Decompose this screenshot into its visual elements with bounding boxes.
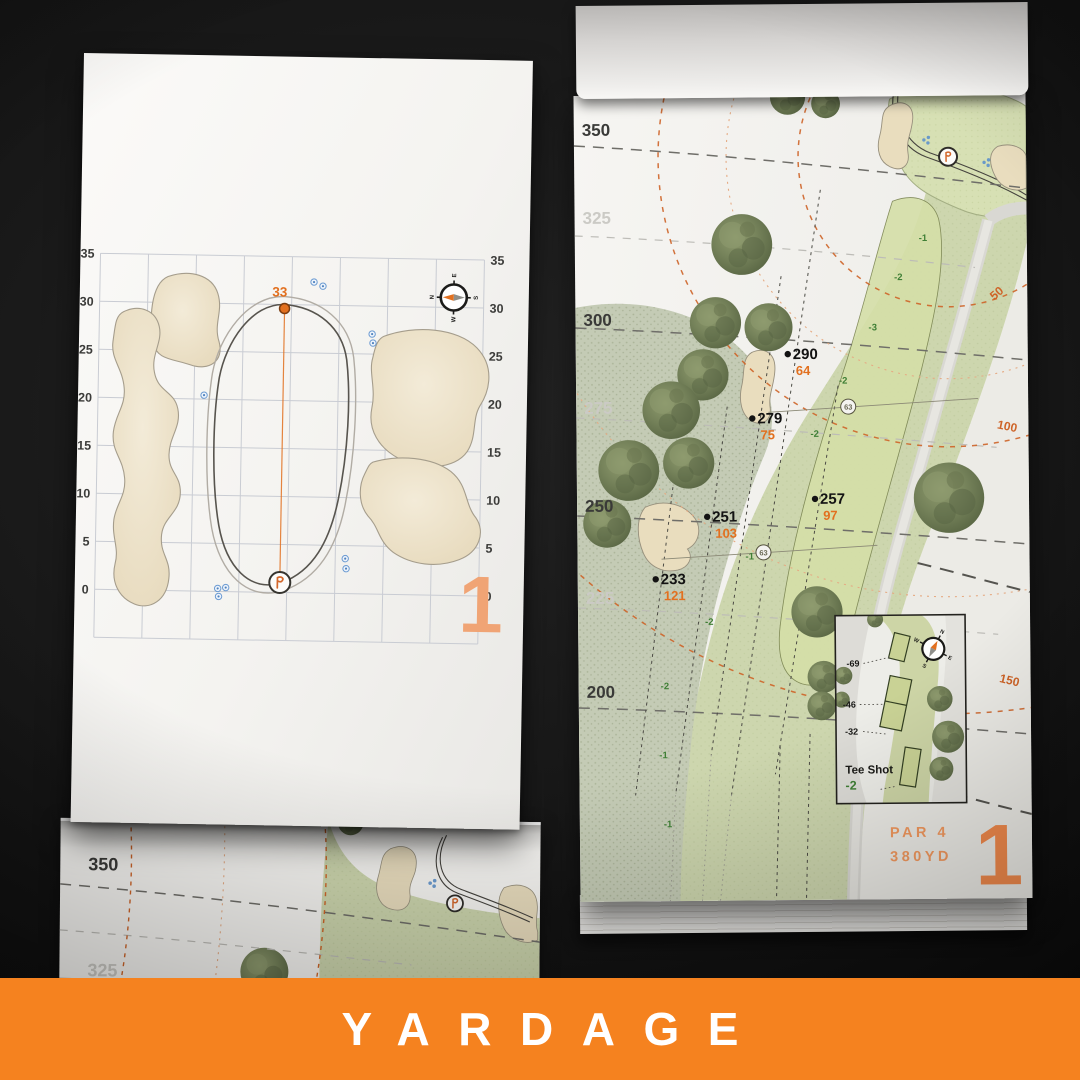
svg-text:5: 5 [82, 535, 89, 549]
green-detail-diagram: 3530 2520 1510 50 3530 2520 1510 50 [71, 53, 533, 830]
svg-text:350: 350 [582, 121, 611, 140]
svg-text:-3: -3 [868, 322, 877, 333]
hole-map: 63 63 [573, 92, 1032, 902]
pin-circle [939, 148, 957, 166]
par-label: PAR 4 [890, 825, 949, 842]
bunker [878, 103, 913, 169]
svg-text:25: 25 [79, 342, 93, 356]
svg-text:75: 75 [760, 427, 775, 442]
svg-text:-69: -69 [846, 659, 859, 669]
bunker [150, 273, 221, 367]
depth-line [280, 309, 285, 581]
svg-text:-1: -1 [745, 551, 754, 562]
pin-circle [269, 572, 290, 593]
distance-label: 380YD [890, 849, 952, 866]
svg-text:-32: -32 [845, 727, 858, 737]
carry-marker: 290 64 [784, 346, 818, 378]
compass-icon: NE SW [429, 273, 480, 323]
svg-text:257: 257 [820, 491, 845, 508]
svg-text:200: 200 [587, 683, 616, 702]
svg-text:W: W [451, 316, 457, 322]
under-green-area [240, 818, 541, 982]
svg-text:97: 97 [823, 508, 838, 523]
svg-text:30: 30 [489, 302, 503, 316]
yardage-book-mockup: 350 325 3530 2520 1510 50 [0, 0, 1080, 1080]
sprinkler-cluster [428, 879, 436, 888]
svg-text:-2: -2 [839, 376, 848, 387]
svg-text:325: 325 [582, 209, 611, 228]
tree [240, 947, 288, 982]
svg-text:E: E [452, 273, 458, 277]
pin-circle [447, 895, 463, 911]
width-marker: 63 [841, 399, 856, 414]
banner-title: YARDAGE [342, 1002, 767, 1056]
svg-text:30: 30 [80, 294, 94, 308]
svg-text:-2: -2 [810, 429, 819, 440]
svg-text:35: 35 [80, 246, 94, 260]
svg-text:251: 251 [712, 509, 737, 526]
hole-number: 1 [975, 807, 1024, 902]
svg-text:-46: -46 [843, 700, 856, 710]
svg-text:250: 250 [585, 497, 614, 516]
svg-text:10: 10 [486, 494, 500, 508]
left-under-page: 350 325 [59, 818, 540, 982]
svg-text:233: 233 [661, 571, 686, 588]
depth-label: 33 [272, 284, 288, 299]
svg-text:20: 20 [488, 398, 502, 412]
left-page-green-detail: 3530 2520 1510 50 3530 2520 1510 50 [71, 53, 533, 830]
svg-text:-1: -1 [919, 233, 928, 244]
tree [929, 757, 953, 781]
svg-text:-1: -1 [664, 819, 673, 830]
flipped-over-page [576, 2, 1029, 99]
svg-text:N: N [430, 295, 436, 299]
svg-text:15: 15 [487, 446, 501, 460]
svg-text:35: 35 [490, 254, 504, 268]
tree [835, 667, 853, 685]
svg-text:225: 225 [586, 589, 615, 608]
svg-text:25: 25 [489, 350, 503, 364]
yardage-label-350: 350 [88, 854, 118, 874]
svg-text:103: 103 [715, 526, 737, 541]
svg-text:S: S [474, 296, 480, 300]
hole-number: 1 [458, 560, 504, 650]
svg-text:15: 15 [77, 438, 91, 452]
svg-text:300: 300 [583, 311, 612, 330]
greenside-bunkers [108, 272, 490, 612]
tee-shot-inset: -69 -46 -32 Tee Shot -2 NE SW [833, 611, 967, 804]
svg-text:-1: -1 [659, 750, 668, 761]
svg-text:64: 64 [796, 363, 811, 378]
svg-text:-2: -2 [705, 617, 714, 628]
tee-shot-total: -2 [845, 779, 856, 793]
svg-text:10: 10 [76, 486, 90, 500]
tee-shot-title: Tee Shot [845, 764, 893, 776]
svg-text:121: 121 [664, 588, 686, 603]
svg-text:-2: -2 [661, 681, 670, 692]
distance-arc [121, 818, 132, 978]
tree [927, 686, 953, 712]
bunker [359, 457, 482, 565]
svg-text:5: 5 [485, 542, 492, 556]
svg-text:63: 63 [759, 548, 767, 557]
footer-banner: YARDAGE [0, 978, 1080, 1080]
bunker [370, 329, 490, 468]
svg-text:279: 279 [757, 410, 782, 427]
svg-text:-2: -2 [894, 272, 903, 283]
svg-text:20: 20 [78, 390, 92, 404]
axis-labels-right: 3530 2520 1510 50 [484, 254, 504, 604]
under-page-map: 350 325 [59, 818, 540, 982]
width-marker: 63 [756, 545, 771, 560]
depth-dot [279, 303, 289, 313]
tree [932, 721, 964, 753]
svg-text:63: 63 [844, 403, 852, 412]
axis-labels-left: 3530 2520 1510 50 [75, 246, 95, 596]
right-page-hole-map: 63 63 [573, 92, 1032, 902]
svg-text:275: 275 [584, 399, 613, 418]
svg-text:290: 290 [793, 346, 818, 363]
svg-text:0: 0 [82, 583, 89, 597]
